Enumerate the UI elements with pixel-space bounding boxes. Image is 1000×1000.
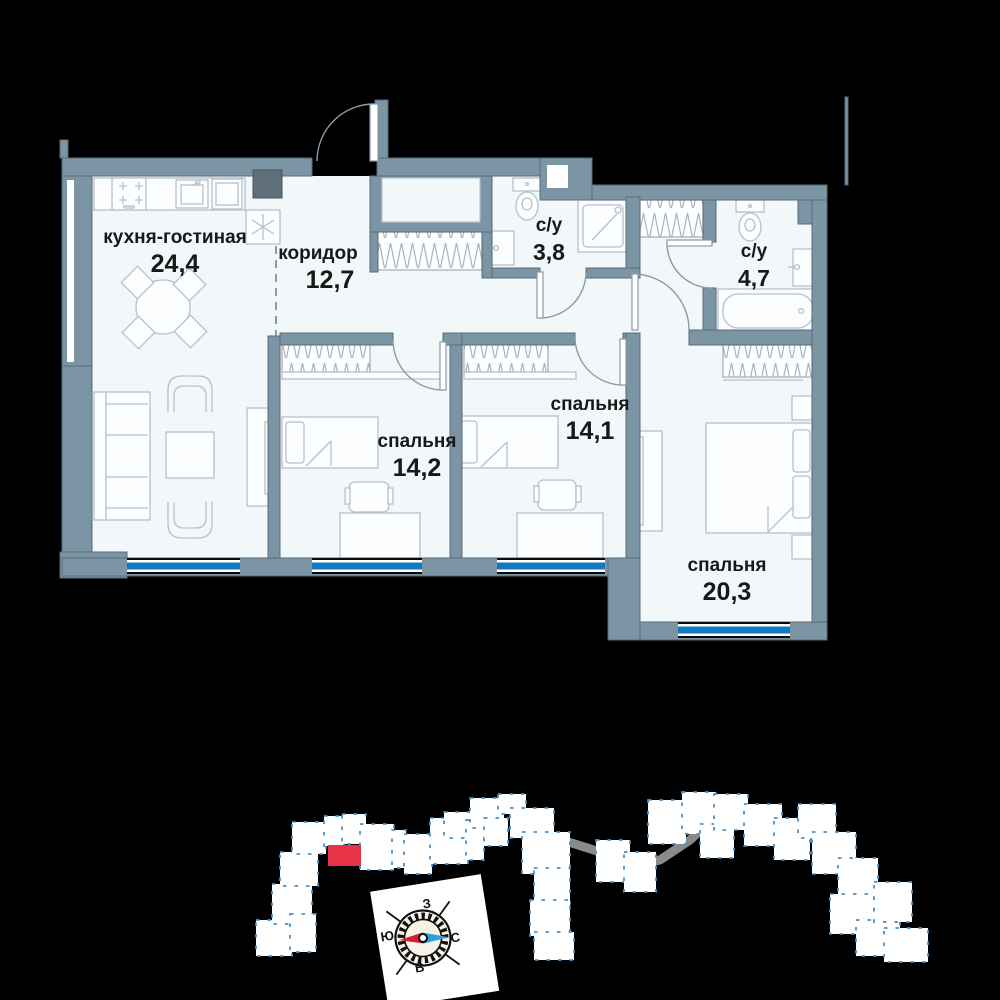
desk <box>340 513 420 558</box>
kitchen-cabinet <box>212 179 242 209</box>
room-area: 14,1 <box>566 417 615 445</box>
window <box>497 558 605 574</box>
kitchen-counter <box>94 178 245 210</box>
floor-plan-canvas: кухня-гостиная 24,4 коридор 12,7 с/у 3,8… <box>0 0 1000 1000</box>
compass-south-label: Ю <box>379 928 395 945</box>
room-label: спальня <box>688 555 767 576</box>
toilet-icon <box>736 200 764 241</box>
compass-rose: З Ю С В <box>370 874 499 1000</box>
pillow <box>793 430 810 472</box>
pillow <box>793 476 810 518</box>
shower-icon <box>578 200 628 252</box>
room-label: с/у <box>536 215 563 236</box>
fridge-icon <box>246 210 280 244</box>
chair <box>345 482 393 512</box>
window <box>312 558 422 574</box>
room-label: кухня-гостиная <box>103 227 246 248</box>
window <box>127 558 240 574</box>
room-area: 14,2 <box>393 454 442 482</box>
sofa <box>94 392 150 520</box>
entrance-door <box>317 104 378 161</box>
pillow <box>286 422 304 463</box>
room-label: коридор <box>278 243 357 264</box>
room-area: 4,7 <box>738 265 770 291</box>
shaft <box>253 170 282 198</box>
site-plan-buildings <box>256 792 928 962</box>
washbasin-icon <box>490 231 514 265</box>
room-label: с/у <box>741 241 768 262</box>
room-label: спальня <box>551 394 630 415</box>
highlighted-unit <box>328 845 361 866</box>
nightstand <box>792 396 812 420</box>
site-plan-minimap <box>256 792 928 962</box>
floor-plan-page: кухня-гостиная 24,4 коридор 12,7 с/у 3,8… <box>0 0 1000 1000</box>
kitchen-sink-icon <box>176 180 208 208</box>
room-area: 3,8 <box>533 239 565 265</box>
window <box>678 622 790 638</box>
coffee-table <box>166 432 214 478</box>
bathtub-icon <box>718 289 818 333</box>
chair <box>534 480 581 510</box>
room-area: 24,4 <box>151 250 200 278</box>
nightstand <box>792 535 812 559</box>
toilet-icon <box>513 178 541 220</box>
room-area: 20,3 <box>703 578 752 606</box>
room-label: спальня <box>378 431 457 452</box>
desk <box>517 513 603 558</box>
stove-icon <box>112 178 146 210</box>
niche <box>382 178 480 222</box>
room-area: 12,7 <box>306 266 355 294</box>
